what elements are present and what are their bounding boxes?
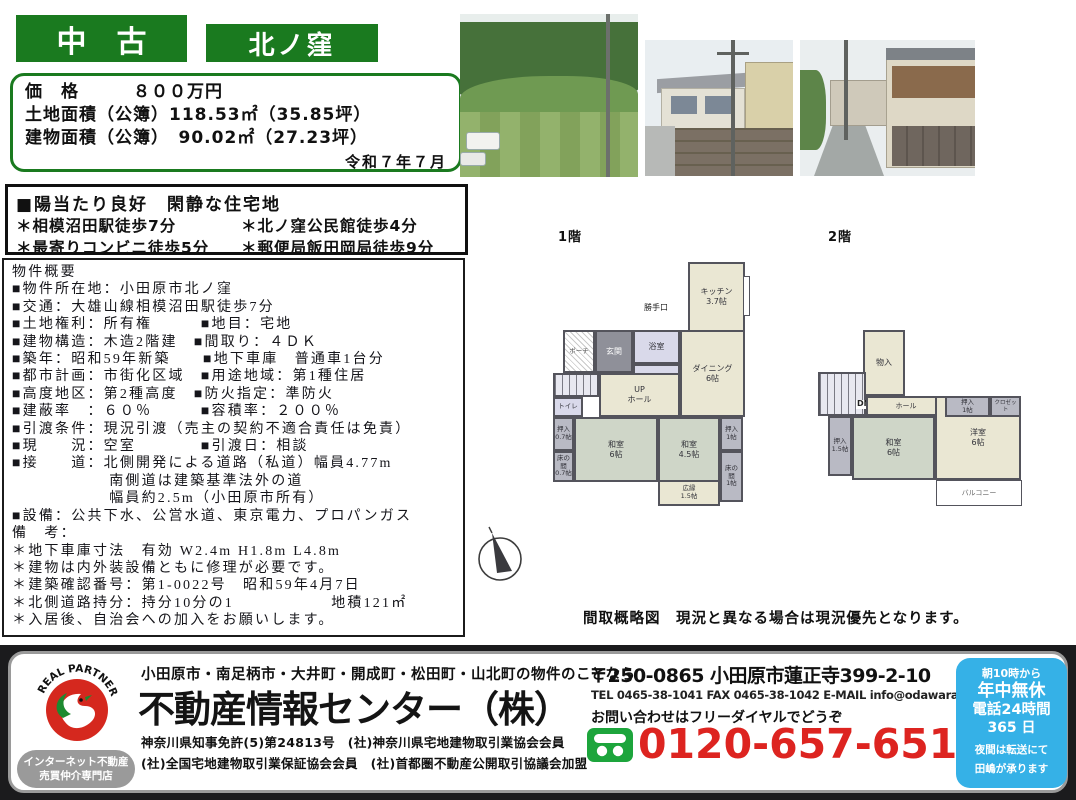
- price-line: 土地面積（公簿）118.53㎡（35.85坪）: [25, 104, 447, 127]
- feature-item: ＊郵便局飯田岡局徒歩9分: [241, 237, 434, 259]
- freedial-row: 0120-657-651: [587, 724, 957, 765]
- photo-balcony: [892, 66, 975, 98]
- floorplan-1f-label: 1階: [558, 226, 582, 245]
- flyer-page: 中 古 北ノ窪 価 格 ８００万円土地面積（公簿）118.53㎡（35.85坪）…: [0, 0, 1076, 800]
- room-washitsu-2f: 和室 6帖: [852, 416, 935, 480]
- photo-crossarm: [717, 52, 749, 55]
- closet-oshiire: 押入 1帖: [945, 396, 990, 417]
- feature-item: ＊北ノ窪公民館徒歩4分: [241, 215, 418, 237]
- photo-garage: [892, 126, 975, 166]
- badge-line: インターネット不動産: [17, 755, 135, 769]
- details-line: ■都市計画：市街化区域 ■用途地域：第1種住居: [12, 368, 455, 385]
- compass-icon: [472, 525, 528, 587]
- freedial-number: 0120-657-651: [638, 724, 957, 765]
- details-line: ■築年：昭和59年新築 ■地下車庫 普通車1台分: [12, 351, 455, 368]
- hours-line: 年中無休: [956, 681, 1067, 701]
- price-line: 建物面積（公簿） 90.02㎡（27.23坪）: [25, 127, 447, 150]
- feature-item: ＊最寄りコンビニ徒歩5分: [16, 237, 241, 259]
- details-line: 南側道は建築基準法外の道: [12, 473, 455, 490]
- price-box: 価 格 ８００万円土地面積（公簿）118.53㎡（35.85坪）建物面積（公簿）…: [10, 73, 462, 172]
- room-toilet: トイレ: [553, 397, 583, 417]
- internet-realty-badge: インターネット不動産 売買仲介専門店: [17, 750, 135, 788]
- details-line: ＊建築確認番号：第1-0022号 昭和59年4月7日: [12, 577, 455, 594]
- room-washitsu-45: 和室 4.5帖: [658, 417, 720, 482]
- details-line: ■設備：公共下水、公営水道、東京電力、プロパンガス: [12, 508, 455, 525]
- photo-road: [645, 126, 675, 176]
- hours-line: 田嶋が承ります: [956, 761, 1067, 776]
- photo-side-house: [745, 62, 793, 134]
- room-hiroen: 広縁 1.5帖: [658, 480, 720, 506]
- caption-line: 間取概略図 現況と異なる場合は現況優先となります。: [583, 609, 969, 629]
- badge-area-name: 北ノ窪: [206, 24, 378, 62]
- details-line: ■建蔽率 ：６０％ ■容積率：２００％: [12, 403, 455, 420]
- photo-neighbor-house: [830, 80, 888, 126]
- freedial-icon: [587, 728, 633, 762]
- details-line: 備 考：: [12, 525, 455, 542]
- tel-fax-email: TEL 0465-38-1041 FAX 0465-38-1042 E-MAIL…: [591, 688, 1000, 702]
- features-row: ＊最寄りコンビニ徒歩5分 ＊郵便局飯田岡局徒歩9分: [16, 237, 457, 259]
- stairs-up: [553, 373, 599, 397]
- hours-line: 電話24時間: [956, 701, 1067, 719]
- footer-card: REAL PARTNER インターネット不動産 売買仲介専門店 小田原市・南足柄…: [8, 651, 1068, 793]
- details-line: ■物件所在地：小田原市北ノ窪: [12, 281, 455, 298]
- tokonoma: 床の間 1帖: [720, 451, 743, 502]
- stairs-down: [818, 372, 866, 416]
- photo-window: [705, 96, 731, 114]
- price-date: 令和７年７月: [25, 151, 447, 174]
- badge-used: 中 古: [16, 15, 187, 62]
- badge-line: 売買仲介専門店: [17, 769, 135, 783]
- company-name: 不動産情報センター（株）: [138, 679, 570, 733]
- details-title: 物件概要: [12, 264, 455, 281]
- details-line: ■交通：大雄山線相模沼田駅徒歩7分: [12, 299, 455, 316]
- company-address: 〒250-0865 小田原市蓮正寺399-2-10: [589, 661, 931, 688]
- company-logo: REAL PARTNER: [25, 656, 129, 754]
- photo-roof: [886, 48, 975, 60]
- details-line: ＊地下車庫寸法 有効 W2.4m H1.8m L4.8m: [12, 543, 455, 560]
- floorplan-2f: 物入 DN ホール 洋室 6帖 押入 1帖 クロゼット 押入 1.5帖 和室 6…: [818, 330, 1028, 510]
- room-hall-2f: ホール: [866, 396, 946, 416]
- license-line: (社)全国宅地建物取引業保証協会会員 (社)首都圏不動産公開取引協議会加盟: [141, 753, 587, 772]
- room-kitchen: キッチン 3.7帖: [688, 262, 745, 332]
- details-line: 幅員約2.5m（小田原市所有）: [12, 490, 455, 507]
- features-row: ＊相模沼田駅徒歩7分 ＊北ノ窪公民館徒歩4分: [16, 215, 457, 237]
- hours-line: 夜間は転送にて: [956, 742, 1067, 757]
- photo-pole: [606, 14, 610, 177]
- property-details-box: 物件概要 ■物件所在地：小田原市北ノ窪■交通：大雄山線相模沼田駅徒歩7分■土地権…: [2, 258, 465, 637]
- details-line: ■高度地区：第2種高度 ■防火指定：準防火: [12, 386, 455, 403]
- closet-oshiire: 押入 1帖: [720, 417, 743, 451]
- balcony: バルコニー: [936, 480, 1022, 506]
- hours-box: 朝10時から 年中無休 電話24時間 365 日 夜間は転送にて 田嶋が承ります: [956, 658, 1067, 788]
- hours-line: 365 日: [956, 719, 1067, 738]
- photo-garden: [460, 14, 638, 177]
- realpartner-logo-icon: REAL PARTNER: [25, 656, 129, 750]
- price-rows: 価 格 ８００万円土地面積（公簿）118.53㎡（35.85坪）建物面積（公簿）…: [25, 81, 447, 150]
- footer-band: REAL PARTNER インターネット不動産 売買仲介専門店 小田原市・南足柄…: [0, 645, 1076, 800]
- tokonoma: 床の間 0.7帖: [553, 451, 574, 482]
- floorplan-2f-label: 2階: [828, 226, 852, 245]
- photo-greenery: [800, 70, 826, 150]
- details-line: ■現 況：空室 ■引渡日：相談: [12, 438, 455, 455]
- details-line: ■引渡条件：現況引渡（売主の契約不適合責任は免責）: [12, 421, 455, 438]
- features-title: ■陽当たり良好 閑静な住宅地: [16, 190, 457, 215]
- feature-item: ＊相模沼田駅徒歩7分: [16, 215, 241, 237]
- photo-window: [671, 96, 697, 114]
- label-backdoor: 勝手口: [643, 304, 669, 313]
- features-box: ■陽当たり良好 閑静な住宅地 ＊相模沼田駅徒歩7分 ＊北ノ窪公民館徒歩4分 ＊最…: [5, 184, 468, 255]
- closet: クロゼット: [990, 396, 1021, 417]
- features-rows: ＊相模沼田駅徒歩7分 ＊北ノ窪公民館徒歩4分 ＊最寄りコンビニ徒歩5分 ＊郵便局…: [16, 215, 457, 259]
- photo-house-side: [800, 40, 975, 176]
- price-line: 価 格 ８００万円: [25, 81, 447, 104]
- hours-line: 朝10時から: [956, 665, 1067, 681]
- room-bath: 浴室: [633, 330, 680, 364]
- room-entrance: 玄関: [595, 330, 633, 373]
- closet-oshiire: 押入 0.7帖: [553, 417, 574, 451]
- details-line: ■建物構造：木造2階建 ■間取り：４ＤＫ: [12, 334, 455, 351]
- closet-oshiire: 押入 1.5帖: [828, 416, 852, 476]
- photo-car: [460, 152, 486, 166]
- details-line: ■接 道：北側開発による道路（私道）幅員4.77m: [12, 455, 455, 472]
- room-washitsu-6: 和室 6帖: [574, 417, 658, 482]
- license-line: 神奈川県知事免許(5)第24813号 (社)神奈川県宅地建物取引業協会会員: [141, 732, 565, 751]
- floorplan-1f: キッチン 3.7帖 勝手口 ダイニング 6帖 浴室 洗面所 玄関 ポーチ トイレ…: [545, 258, 755, 508]
- details-lines: ■物件所在地：小田原市北ノ窪■交通：大雄山線相模沼田駅徒歩7分■土地権利：所有権…: [12, 281, 455, 629]
- details-line: ＊建物は内外装設備ともに修理が必要です。: [12, 560, 455, 577]
- room-hall-1f: UP ホール: [599, 373, 680, 417]
- room-porch: ポーチ: [563, 330, 595, 373]
- photo-pole: [731, 40, 735, 176]
- room-dining: ダイニング 6帖: [680, 330, 745, 417]
- details-line: ＊入居後、自治会への加入をお願いします。: [12, 612, 455, 629]
- details-line: ＊北側道路持分：持分10分の1 地積121㎡: [12, 595, 455, 612]
- photo-van: [466, 132, 500, 150]
- details-line: ■土地権利：所有権 ■地目：宅地: [12, 316, 455, 333]
- bay-window: [743, 276, 750, 316]
- photo-house-front: [645, 40, 793, 176]
- room-storage: 物入: [863, 330, 905, 396]
- photo-pole: [844, 40, 848, 140]
